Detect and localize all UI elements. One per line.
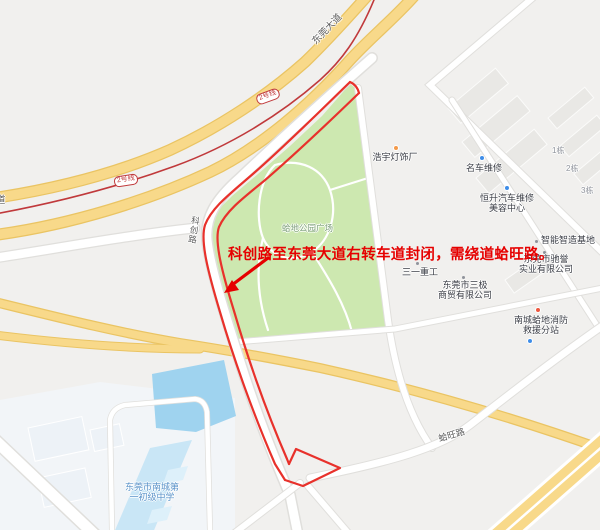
poi-label-sanyi[interactable]: 三一重工 xyxy=(402,268,438,278)
poi-dot-hengsheng[interactable] xyxy=(504,185,510,191)
poi-label-line: 一初级中学 xyxy=(129,492,174,502)
closure-annotation-text: 科创路至东莞大道右转车道封闭，需绕道蛤旺路。 xyxy=(228,243,554,264)
poi-dot-xiaofang[interactable] xyxy=(535,307,541,313)
building-label-3: 3栋 xyxy=(581,185,593,196)
poi-label-hengsheng[interactable]: 恒升汽车维修 美容中心 xyxy=(478,194,536,213)
poi-label-mingche[interactable]: 名车维修 xyxy=(464,164,504,174)
poi-label-school[interactable]: 东莞市南城第 一初级中学 xyxy=(114,482,190,502)
poi-label-line: 南城蛤地消防 xyxy=(514,315,568,325)
poi-dot-mingche[interactable] xyxy=(479,155,485,161)
building-label-2: 2栋 xyxy=(566,163,578,174)
poi-label-line: 实业有限公司 xyxy=(519,264,573,274)
poi-label-line: 商贸有限公司 xyxy=(438,290,492,300)
map-vector-layer xyxy=(0,0,600,530)
poi-label-line: 救援分站 xyxy=(523,325,559,335)
park-label: 蛤地公园广场 xyxy=(282,222,333,234)
map-canvas[interactable]: 东莞大道 科创路 蛤旺路 道 2号线 2号线 蛤地公园广场 浩宇灯饰厂 名车维修… xyxy=(0,0,600,530)
poi-dot-haoyu[interactable] xyxy=(393,145,399,151)
poi-label-sanji[interactable]: 东莞市三极 商贸有限公司 xyxy=(437,281,493,300)
poi-label-line: 东莞市三极 xyxy=(442,280,487,290)
building-label-1: 1栋 xyxy=(552,145,564,156)
poi-label-haoyu[interactable]: 浩宇灯饰厂 xyxy=(367,153,423,163)
poi-dot-sanji[interactable] xyxy=(462,276,465,279)
poi-label-line: 东莞市南城第 xyxy=(125,482,179,492)
poi-label-line: 美容中心 xyxy=(489,203,525,213)
road-label-left-partial: 道 xyxy=(0,192,6,206)
poi-dot-unlabeled[interactable] xyxy=(527,338,533,344)
poi-label-line: 恒升汽车维修 xyxy=(480,193,534,203)
poi-label-xiaofang[interactable]: 南城蛤地消防 救援分站 xyxy=(512,316,570,335)
